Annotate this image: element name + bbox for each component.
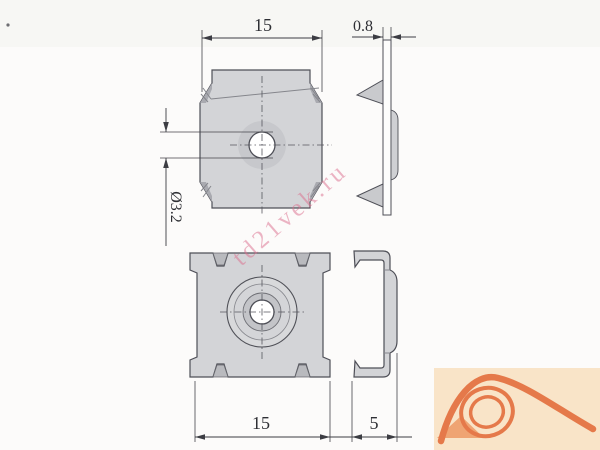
boss-profile [391, 110, 398, 180]
technical-drawing: 15 Ø3.2 0.8 [0, 0, 600, 450]
drawing-canvas: 15 Ø3.2 0.8 [0, 0, 600, 450]
dimension-front-width: 15 [195, 381, 412, 442]
front-view [190, 253, 330, 377]
dim-label-thickness: 0.8 [353, 18, 373, 35]
dim-label-clip-depth: 5 [370, 413, 379, 433]
dim-label-hole-diameter: Ø3.2 [167, 191, 184, 223]
clip-channel-outline [354, 251, 397, 377]
side-view-top [357, 40, 398, 215]
brand-logo [434, 368, 600, 450]
spring-tab-lower [357, 184, 383, 207]
dim-label-top-width: 15 [254, 15, 272, 35]
dim-label-front-width: 15 [252, 413, 270, 433]
scan-artifact-band [0, 0, 600, 47]
side-strip [383, 40, 391, 215]
scan-speck [6, 23, 9, 26]
spring-tab-upper [357, 80, 383, 104]
side-view-bottom [354, 251, 397, 377]
